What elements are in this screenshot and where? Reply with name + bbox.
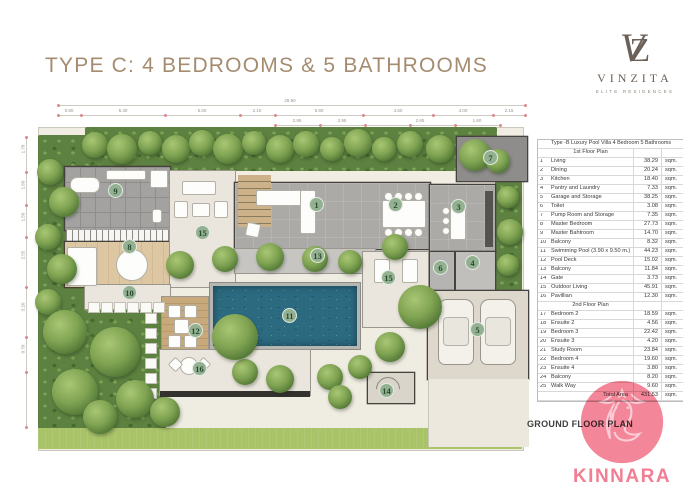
room-badge: 2 <box>388 197 403 212</box>
area-table-row: 3Kitchen18.40sqm. <box>538 176 683 185</box>
tree-icon <box>35 224 61 250</box>
tree-icon <box>256 243 284 271</box>
bedroom-table <box>116 249 148 281</box>
stone <box>88 302 100 313</box>
area-table-row: 2nd Floor Plan <box>538 302 683 311</box>
area-table-row: 16Pavillian12.30sqm. <box>538 293 683 302</box>
page-title: TYPE C: 4 BEDROOMS & 5 BATHROOMS <box>45 54 488 78</box>
room-badge: 8 <box>122 239 137 254</box>
dim-tick <box>80 114 83 117</box>
area-table-row: 11Swimming Pool (3.90 x 9.50 m.)44.23sqm… <box>538 248 683 257</box>
area-table-row: 1st Floor Plan <box>538 149 683 158</box>
tree-icon <box>293 131 319 157</box>
tree-icon <box>138 131 162 155</box>
bathroom-vanity <box>106 170 146 180</box>
tree-icon <box>43 310 87 354</box>
area-table-row: 17Bedroom 218.59sqm. <box>538 311 683 320</box>
tree-icon <box>82 132 108 158</box>
room-badge: 15 <box>381 270 396 285</box>
dim-tick <box>362 114 365 117</box>
deck-table <box>174 319 189 334</box>
tree-icon <box>213 134 243 164</box>
area-table-row: 7Pump Room and Storage7.35sqm. <box>538 212 683 221</box>
dim-tick <box>57 114 60 117</box>
tree-icon <box>116 380 154 418</box>
stone <box>114 302 126 313</box>
deck-chair <box>168 305 181 318</box>
stone <box>145 313 157 324</box>
area-table-row: 2Dining20.24sqm. <box>538 167 683 176</box>
tree-icon <box>107 134 137 164</box>
kinnara-figure-icon <box>580 380 664 464</box>
dim-tick <box>25 286 28 289</box>
tree-icon <box>266 135 294 163</box>
tree-icon <box>47 254 77 284</box>
area-table-row: 15Outdoor Living45.91sqm. <box>538 284 683 293</box>
tree-icon <box>426 135 454 163</box>
tree-icon <box>382 234 408 260</box>
area-table-row: 19Bedroom 322.42sqm. <box>538 329 683 338</box>
vinzita-logo: VZ VINZITA ELITE RESIDENCES <box>592 24 678 94</box>
area-table-row: 9Master Bahtroom14.70sqm. <box>538 230 683 239</box>
room-badge: 12 <box>188 323 203 338</box>
area-table-row: 12Pool Deck15.02sqm. <box>538 257 683 266</box>
outdoor-table <box>192 203 210 217</box>
deck-chair <box>168 335 181 348</box>
room-badge: 15 <box>195 225 210 240</box>
tree-icon <box>212 246 238 272</box>
area-table-row: 10Balcony8.32sqm. <box>538 239 683 248</box>
dining-chair <box>414 192 423 201</box>
room-badge: 7 <box>483 150 498 165</box>
kitchen-counter <box>485 191 493 247</box>
dim-tick <box>57 104 60 107</box>
tree-icon <box>232 359 258 385</box>
dim-tick <box>274 114 277 117</box>
vz-monogram-icon: VZ <box>592 24 678 70</box>
brochure-page: TYPE C: 4 BEDROOMS & 5 BATHROOMS VZ VINZ… <box>0 0 683 483</box>
dim-tick <box>25 336 28 339</box>
room-badge: 14 <box>379 383 394 398</box>
dim-tick <box>524 104 527 107</box>
tree-icon <box>83 400 117 434</box>
stone <box>145 373 157 384</box>
stone <box>145 328 157 339</box>
tree-icon <box>348 355 372 379</box>
car <box>438 299 474 365</box>
dim-tick <box>524 114 527 117</box>
tree-icon <box>150 397 180 427</box>
room-badge: 13 <box>310 248 325 263</box>
area-table-row: 21Study Room23.84sqm. <box>538 347 683 356</box>
tree-icon <box>344 129 372 157</box>
dining-chair <box>404 192 413 201</box>
floor-plan: 28.90 0.80 5.40 5.00 2.10 5.90 4.50 4.00… <box>30 97 535 450</box>
patio-bench <box>402 259 418 283</box>
tree-icon <box>90 327 140 377</box>
room-badge: 16 <box>192 361 207 376</box>
pavilion-wall <box>160 391 310 397</box>
area-table-row: 8Master Bedroom27.73sqm. <box>538 221 683 230</box>
area-table-row: 1Living38.29sqm. <box>538 158 683 167</box>
tree-icon <box>375 332 405 362</box>
stone <box>127 302 139 313</box>
area-table-row: 22Bedroom 419.60sqm. <box>538 356 683 365</box>
room-badge: 3 <box>451 199 466 214</box>
tree-icon <box>497 186 519 208</box>
room-badge: 5 <box>470 322 485 337</box>
area-table-row: 14Gate3.73sqm. <box>538 275 683 284</box>
tree-icon <box>497 254 519 276</box>
outdoor-chair <box>214 201 228 218</box>
stool <box>442 227 450 235</box>
dining-chair <box>414 228 423 237</box>
dim-tick <box>25 136 28 139</box>
stone <box>145 343 157 354</box>
tree-icon <box>242 131 266 155</box>
tree-icon <box>338 250 362 274</box>
area-table-row: 5Garage and Storage38.25sqm. <box>538 194 683 203</box>
outdoor-sofa <box>182 181 216 195</box>
tree-icon <box>166 251 194 279</box>
tree-icon <box>372 137 396 161</box>
tree-icon <box>497 219 523 245</box>
brand-tagline: ELITE RESIDENCES <box>592 89 678 94</box>
brand-name: VINZITA <box>592 71 678 86</box>
tree-icon <box>49 187 79 217</box>
stone <box>140 302 152 313</box>
area-table-row: 23Ensuite 43.80sqm. <box>538 365 683 374</box>
area-table-row: 4Pantry and Laundry7.33sqm. <box>538 185 683 194</box>
dim-tick <box>25 236 28 239</box>
wardrobe <box>66 230 169 242</box>
room-badge: 9 <box>108 183 123 198</box>
room-badge: 1 <box>309 197 324 212</box>
toilet-fixture <box>152 209 162 223</box>
stool <box>442 207 450 215</box>
dining-chair <box>404 228 413 237</box>
area-table: Type -B Luxury Pool Villa 4 Bedroom 5 Ba… <box>537 139 683 402</box>
deck-chair <box>184 305 197 318</box>
kinnara-wordmark: KINNARA <box>566 466 678 483</box>
area-table-row: 13Balcony11.84sqm. <box>538 266 683 275</box>
tree-icon <box>328 385 352 409</box>
room-badge: 10 <box>122 285 137 300</box>
kinnara-watermark: KINNARA <box>566 380 678 483</box>
tree-icon <box>162 135 190 163</box>
stool <box>442 217 450 225</box>
shower <box>150 170 168 188</box>
area-table-row: Type -B Luxury Pool Villa 4 Bedroom 5 Ba… <box>538 140 683 149</box>
stone <box>101 302 113 313</box>
area-table-row: 6Toilet3.08sqm. <box>538 203 683 212</box>
dim-tick <box>25 426 28 429</box>
room-badge: 11 <box>282 308 297 323</box>
tree-icon <box>398 285 442 329</box>
outdoor-chair <box>174 201 188 218</box>
tree-icon <box>189 130 215 156</box>
driveway <box>428 379 529 447</box>
dim-overall: 28.90 <box>284 98 295 103</box>
dim-tick <box>25 204 28 207</box>
coffee-table <box>245 222 262 239</box>
dim-tick <box>492 114 495 117</box>
room-badge: 6 <box>433 260 448 275</box>
tree-icon <box>37 159 63 185</box>
room-badge: 4 <box>465 255 480 270</box>
tree-icon <box>320 137 344 161</box>
stone <box>153 302 165 313</box>
dim-tick <box>25 371 28 374</box>
dim-tick <box>25 171 28 174</box>
dim-tick <box>239 114 242 117</box>
tree-icon <box>397 131 423 157</box>
tree-icon <box>212 314 258 360</box>
dim-tick <box>164 114 167 117</box>
dim-tick <box>432 114 435 117</box>
tree-icon <box>266 365 294 393</box>
area-table-row: 18Ensuite 24.56sqm. <box>538 320 683 329</box>
area-table-row: 20Ensuite 34.20sqm. <box>538 338 683 347</box>
stone <box>145 358 157 369</box>
car <box>480 299 516 365</box>
